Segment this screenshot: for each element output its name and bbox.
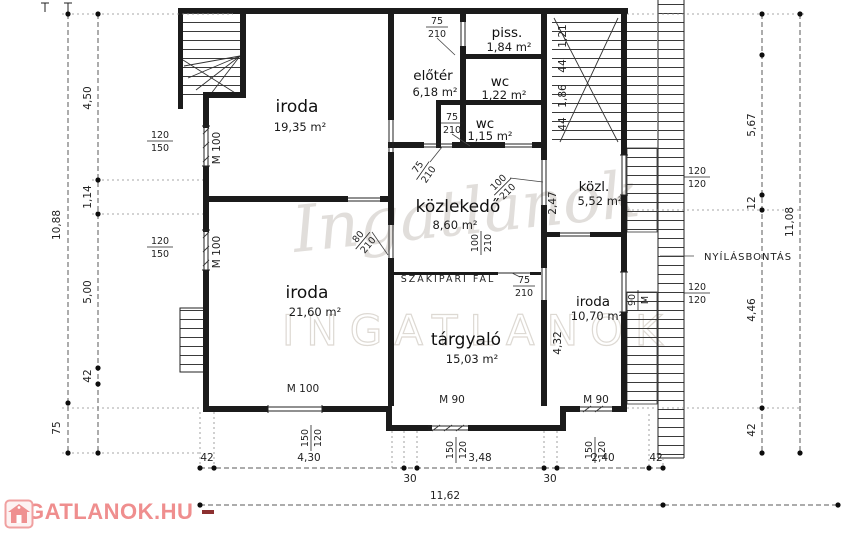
svg-text:150: 150 [300, 429, 311, 447]
window-size-left1: 120150 [147, 130, 173, 154]
room-label-eloter: előtér 6,18 m² [412, 68, 457, 99]
dim-door-m90a: M 90 [439, 394, 465, 406]
dim-right-total: 11,08 [784, 207, 796, 237]
dim-stair-121: 1,21 [557, 24, 569, 47]
svg-text:21,60 m²: 21,60 m² [289, 305, 341, 319]
svg-text:15,03 m²: 15,03 m² [446, 352, 498, 366]
svg-text:5,52 m²: 5,52 m² [577, 194, 622, 208]
room-label-iroda-br: iroda 10,70 m² [571, 294, 623, 323]
svg-text:150: 150 [584, 441, 595, 459]
svg-text:120: 120 [597, 441, 608, 459]
dim-bottom-430: 4,30 [297, 452, 320, 464]
stair-right-mid [627, 16, 657, 232]
partition-wall-note: SZAKIPARI FAL [401, 274, 496, 285]
room-label-iroda-bl: iroda 21,60 m² [286, 283, 342, 319]
dim-stair-44b: 44 [557, 117, 569, 131]
svg-text:150: 150 [445, 441, 456, 459]
svg-text:1,15 m²: 1,15 m² [467, 129, 512, 143]
door-size-75d: 75210 [513, 275, 535, 299]
svg-text:120: 120 [151, 236, 169, 247]
svg-text:210: 210 [483, 234, 494, 252]
dim-left-500: 5,00 [82, 280, 94, 303]
svg-text:90: 90 [627, 294, 638, 306]
center-watermark: Ingatlanok INGATLANOK [282, 158, 675, 355]
svg-text:120: 120 [688, 166, 706, 177]
window-size-right2: 120120 [684, 282, 710, 306]
dim-left-total: 10,88 [51, 210, 63, 240]
svg-text:19,35 m²: 19,35 m² [274, 120, 326, 134]
dim-bottom-30l: 30 [403, 473, 416, 485]
text-annotations: SZAKIPARI FAL NYÍLÁSBONTÁS [401, 250, 792, 285]
dim-stair-44a: 44 [557, 59, 569, 73]
svg-text:tárgyaló: tárgyaló [431, 330, 501, 350]
svg-text:10,70 m²: 10,70 m² [571, 309, 623, 323]
room-label-targyalo: tárgyaló 15,03 m² [431, 330, 501, 366]
stair-top-left [183, 10, 240, 96]
door-size-75a: 75210 [426, 16, 448, 40]
svg-text:120: 120 [313, 429, 324, 447]
dim-bottom-total: 11,62 [430, 490, 460, 502]
svg-text:120: 120 [688, 179, 706, 190]
svg-text:100: 100 [470, 234, 481, 252]
svg-text:M: M [640, 296, 651, 304]
svg-text:75: 75 [431, 16, 443, 27]
svg-text:iroda: iroda [286, 283, 329, 303]
ingatlanok-logo: INGATLANOK.HU [4, 499, 214, 525]
dim-m100-left2: M 100 [211, 236, 223, 268]
dim-stair-186: 1,86 [557, 84, 569, 108]
window-size-left2: 120150 [147, 236, 173, 260]
svg-text:piss.: piss. [492, 25, 523, 41]
svg-text:120: 120 [688, 282, 706, 293]
opening-demolition-note: NYÍLÁSBONTÁS [704, 250, 792, 263]
svg-text:6,18 m²: 6,18 m² [412, 85, 457, 99]
svg-text:150: 150 [151, 143, 169, 154]
svg-text:iroda: iroda [576, 294, 610, 310]
room-label-iroda-tl: iroda 19,35 m² [274, 97, 326, 134]
svg-text:120: 120 [458, 441, 469, 459]
dim-door-m90b: M 90 [583, 394, 609, 406]
dim-left-114: 1,14 [82, 185, 94, 209]
svg-text:150: 150 [151, 249, 169, 260]
window-size-bottom2: 150120 [445, 437, 469, 463]
dim-right-42: 42 [746, 423, 758, 436]
dim-bottom-30r: 30 [543, 473, 556, 485]
svg-text:120: 120 [151, 130, 169, 141]
floor-plan-drawing: Ingatlanok INGATLANOK [0, 0, 847, 539]
dim-right-446: 4,46 [746, 298, 758, 322]
svg-text:210: 210 [515, 288, 533, 299]
svg-text:75: 75 [446, 112, 458, 123]
dim-left-75: 75 [51, 421, 63, 434]
svg-text:1,22 m²: 1,22 m² [481, 88, 526, 102]
dim-bottom-348: 3,48 [468, 452, 491, 464]
dim-left-42: 42 [82, 369, 94, 382]
dim-m100-bottom: M 100 [287, 383, 319, 395]
hatched-pier-left [180, 308, 206, 372]
room-label-wc1: wc 1,22 m² [481, 74, 526, 102]
svg-text:közlekedő: közlekedő [416, 197, 501, 217]
dim-m100-left1: M 100 [211, 132, 223, 164]
dim-mid-432: 4,32 [552, 331, 564, 354]
outer-masonry-strip [658, 0, 684, 458]
window-size-bottom1: 150120 [300, 425, 324, 451]
svg-text:iroda: iroda [276, 97, 319, 117]
door-size-75b: 75210 [441, 112, 463, 136]
stair-bottom-right [627, 292, 657, 404]
window-size-right1: 120120 [684, 166, 710, 190]
dim-bottom-42r: 42 [649, 452, 662, 464]
dim-bottom-42l: 42 [200, 452, 213, 464]
dim-left-450: 4,50 [82, 86, 94, 109]
room-label-wc2: wc 1,15 m² [467, 116, 512, 143]
svg-text:120: 120 [688, 295, 706, 306]
dim-right-12: 12 [746, 196, 758, 209]
svg-text:előtér: előtér [413, 68, 453, 84]
svg-text:1,84 m²: 1,84 m² [486, 40, 531, 54]
room-label-piss: piss. 1,84 m² [486, 25, 531, 54]
house-icon [4, 499, 34, 529]
dim-right-567: 5,67 [746, 113, 758, 136]
dim-mid-247: 2,47 [547, 191, 559, 214]
svg-text:8,60 m²: 8,60 m² [432, 218, 477, 232]
watermark-dash [202, 510, 214, 514]
svg-text:közl.: közl. [579, 179, 610, 195]
